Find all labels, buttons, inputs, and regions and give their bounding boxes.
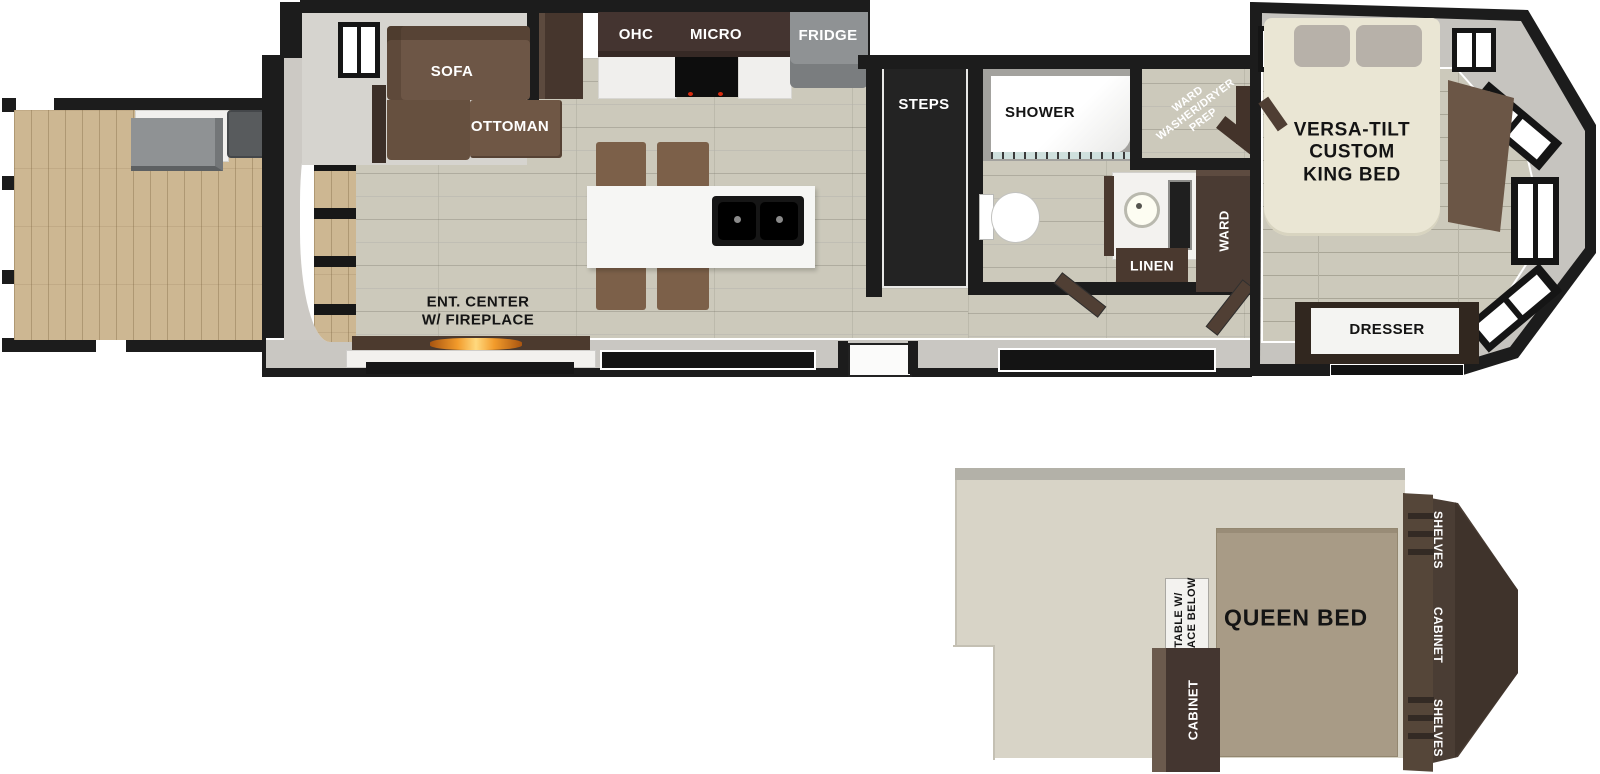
ottoman (470, 100, 562, 158)
dinette-chair (657, 142, 709, 188)
entry-door-landing (848, 343, 912, 377)
loft-floorplan: QUEEN BED TABLE W/ SPACE BELOW CABINET S… (0, 460, 1600, 774)
entry-step-tread (314, 256, 356, 267)
window-pane (1457, 33, 1472, 67)
queen-bed (1216, 528, 1398, 757)
king-bed-pillow (1356, 25, 1422, 67)
bedroom-window-icon (1452, 28, 1496, 72)
fridge (790, 12, 868, 88)
entry-step-tread (314, 208, 356, 219)
king-bed-pillow (1294, 25, 1350, 67)
deck-griddle (131, 118, 223, 171)
loft-floor-edge (955, 468, 1405, 480)
deck-rail-gap (2, 112, 14, 176)
window-pane (343, 27, 357, 73)
steps-well (882, 64, 968, 288)
shower-pan (991, 76, 1131, 154)
main-top-wall (858, 55, 1258, 69)
sofa-side-cabinet (372, 85, 386, 163)
entry-step-tread (314, 304, 356, 315)
toilet-bowl (991, 192, 1040, 243)
range-burner-light (718, 92, 723, 96)
hall-window (998, 348, 1216, 372)
dinette-chair (657, 264, 709, 310)
overhead-cabinet (598, 12, 790, 57)
steps-left-wall (866, 55, 882, 297)
window-pane (357, 27, 375, 73)
ward-cabinet (1196, 170, 1252, 292)
loft-floor-notch (953, 645, 995, 760)
vanity-sink-icon (1124, 192, 1160, 228)
vanity-mirror (1168, 180, 1192, 250)
bath-left-wall (968, 55, 983, 295)
sofa (387, 26, 530, 100)
floorplan-canvas: SOFA OTTOMAN OHC MICRO FRIDGE ENT. CENTE… (0, 0, 1600, 774)
dinette-chair (596, 142, 646, 188)
loft-right-unit (1400, 485, 1525, 774)
deck-rail-gap (96, 340, 126, 352)
window-pane (1472, 33, 1491, 67)
living-window (600, 350, 816, 370)
dinette-chair (596, 264, 646, 310)
exterior-wall-left (262, 55, 284, 370)
wd-closet-left-wall (1130, 62, 1142, 164)
dresser-top (1311, 308, 1459, 354)
deck-rail-gap (2, 190, 14, 270)
loft-cabinet (1152, 648, 1220, 772)
kitchen-range (675, 53, 738, 97)
deck-rail-gap (16, 98, 54, 110)
loft-unit-shade (1455, 502, 1518, 758)
sink-drain-icon (776, 216, 783, 223)
main-floorplan: SOFA OTTOMAN OHC MICRO FRIDGE ENT. CENTE… (0, 0, 1600, 380)
entry-door-jamb (908, 341, 918, 374)
fireplace-flame-icon (430, 338, 522, 350)
deck-rail-gap (2, 284, 14, 338)
vanity-faucet-icon (1136, 203, 1142, 209)
vanity-cabinet-edge (1104, 176, 1114, 256)
sofa-slide-window-icon (338, 22, 380, 78)
linen-cabinet (1116, 248, 1188, 284)
ent-center-hearth (366, 362, 574, 374)
entry-door-jamb (838, 341, 848, 374)
sofa-chaise (387, 100, 470, 160)
shower-glass-door (991, 152, 1131, 159)
sink-drain-icon (734, 216, 741, 223)
kitchen-counter-right (738, 55, 792, 99)
range-burner-light (688, 92, 693, 96)
wd-closet-bottom-wall (1130, 158, 1252, 170)
bedroom-window-strip (1330, 364, 1464, 376)
kitchen-counter-left (598, 55, 677, 99)
pantry-cabinet (539, 13, 583, 99)
cap-window-middle-icon (1511, 177, 1559, 265)
